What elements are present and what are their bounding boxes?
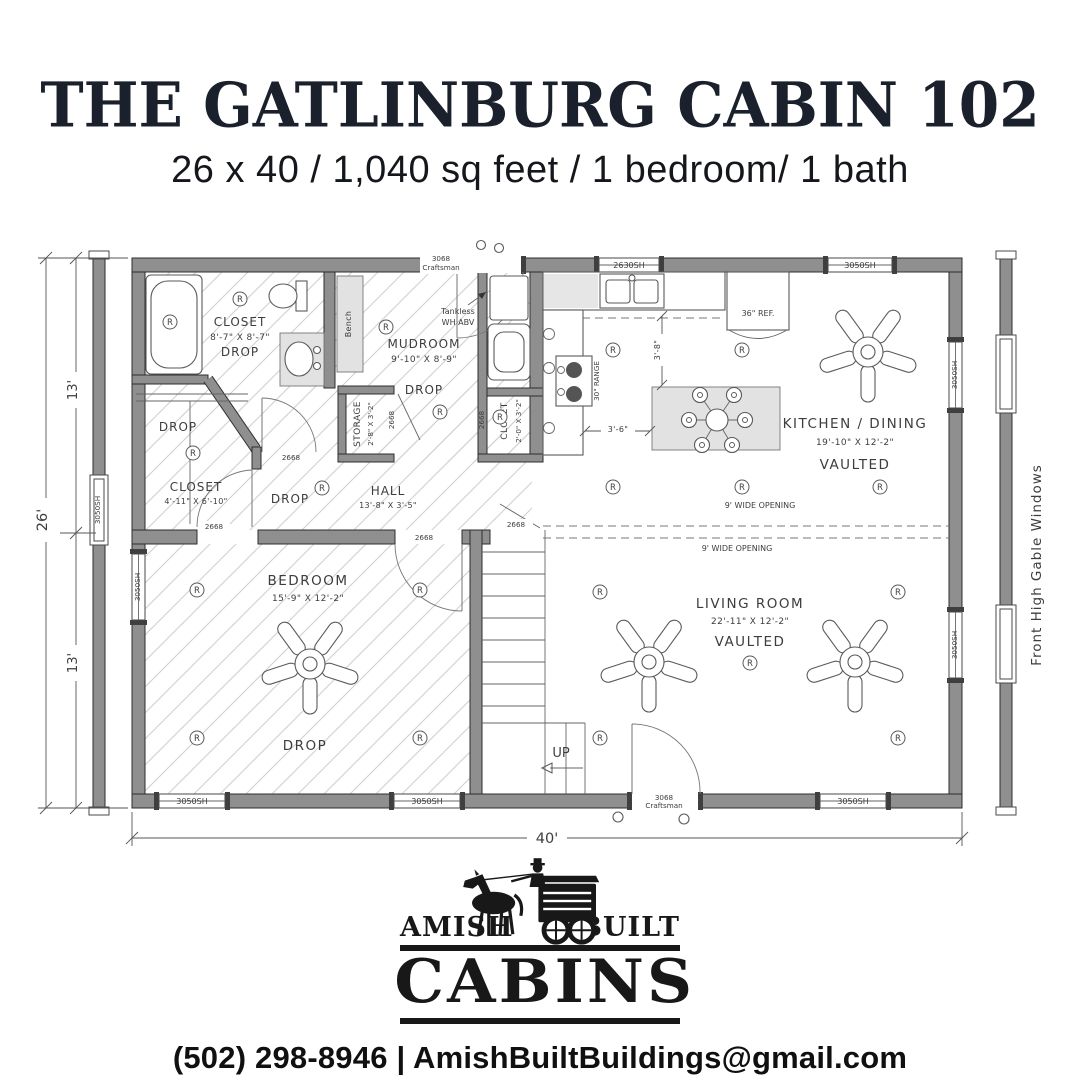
washer-inner [494,332,524,372]
wide-opening-label: 9' WIDE OPENING [725,501,796,510]
right-gable-strip [996,251,1016,815]
room-size: 2'-8" X 3'-2" [366,402,375,446]
wagon-body [538,884,596,922]
door-label: 2668 [477,410,486,429]
room-ceiling: DROP [405,383,443,397]
door-label: 2668 [415,533,434,542]
room-size: 13'-8" X 3'-5" [359,501,417,510]
room-name: KITCHEN / DINING [783,416,928,432]
driver-body [530,873,546,887]
dim-overall-width: 40' [536,831,558,847]
porch-light-icon [679,814,689,824]
front-door-living: 3068 Craftsman [627,724,703,810]
kitchen-dining: 30" RANGE 36" REF. 3'-6" 3'-8" [543,272,927,473]
door-label: 2668 [387,410,396,429]
room-size: 4'-11" X 6'-10" [164,497,227,506]
window-label: 3050SH [844,261,875,270]
driver-hat [534,858,542,864]
dim-label: 3'-8" [653,340,662,360]
door-label: Craftsman [422,263,459,272]
door-label: 2668 [282,453,301,462]
amish-built-cabins-logo: AMISH BUILT CABINS [400,856,680,1024]
room-size: 22'-11" X 12'-2" [711,617,789,627]
bench-label: Bench [344,311,353,337]
door-label: 2668 [205,522,224,531]
door-label: Craftsman [645,801,682,810]
room-ceiling: DROP [271,492,309,506]
window-3050sh-bottom-1: 3050SH [154,792,230,810]
room-name: STORAGE [353,401,363,447]
door-label: 3068 [432,254,451,263]
room-name: LIVING ROOM [696,596,804,612]
room-size: 8'-7" X 8'-7" [210,333,270,343]
room-ceiling: DROP [159,420,197,434]
window-label: 3050SH [950,361,959,389]
room-size: 15'-9" X 12'-2" [272,594,344,604]
room-size: 19'-10" X 12'-2" [816,438,894,448]
window-2630sh: 2630SH [594,256,664,274]
dim-top-half: 13' [66,380,81,400]
island [652,387,780,453]
range-label: 30" RANGE [592,361,601,401]
fridge-icon: 36" REF. [727,272,789,339]
gable-windows-note: Front High Gable Windows [1029,464,1045,666]
tankless-label: Tankless [440,307,475,316]
window-3050sh-bottom-2: 3050SH [389,792,465,810]
vanity-sink-icon [280,333,324,386]
window-label: 3050SH [837,797,868,806]
window-3050sh-top: 3050SH [823,256,897,274]
window-label: 3050SH [133,573,142,601]
range-icon: 30" RANGE [556,356,601,406]
room-name: CLOSET [214,315,267,329]
room-ceiling: VAULTED [820,457,891,473]
room-name: CLOSET [170,480,223,494]
dim-overall-height: 26' [35,509,51,531]
horse-ear [474,869,479,875]
up-label: UP [552,746,570,761]
horse-tail [514,895,521,916]
wide-opening-label: 9' WIDE OPENING [702,544,773,553]
room-name: HALL [371,484,406,498]
room-ceiling: DROP [221,345,259,359]
living-room: LIVING ROOM 22'-11" X 12'-2" VAULTED [599,596,904,712]
room-name: BEDROOM [268,573,349,589]
window-3050sh-right-1: 3050SH [947,337,964,413]
window-label: 3050SH [176,797,207,806]
window-label: 3050SH [411,797,442,806]
dim-label: 3'-6" [608,425,628,434]
fridge-label: 36" REF. [742,309,775,318]
window-label: 3050SH [93,496,102,524]
door-label: 2668 [507,520,526,529]
island-table [706,409,728,431]
small-closet-door: 2668 [477,410,486,429]
room-name: MUDROOM [388,337,461,351]
stairs: UP [482,530,585,794]
window-3050sh-bottom-3: 3050SH [815,792,891,810]
counter-corner [544,274,598,308]
dim-bottom-half: 13' [66,653,81,673]
logo-divider-bottom [400,1018,680,1024]
flyer-footer: AMISH BUILT CABINS (502) 298-8946 | Amis… [0,856,1080,1076]
window-label: 2630SH [613,261,644,270]
window-3050sh-right-2: 3050SH [947,607,964,683]
window-3050sh-left: 3050SH [130,549,147,625]
porch-light-icon [495,244,504,253]
wide-opening-beam: 9' WIDE OPENING 9' WIDE OPENING [543,501,949,553]
contact-line: (502) 298-8946 | AmishBuiltBuildings@gma… [0,1040,1080,1076]
window-label: 3050SH [950,631,959,659]
porch-light-icon [477,241,486,250]
dryer-icon [490,276,528,320]
porch-light-icon [613,812,623,822]
wagon-roof [537,876,599,882]
room-ceiling: VAULTED [715,634,786,650]
room-size: 9'-10" X 8'-9" [391,355,457,365]
tankless-label: WH ABV [442,318,475,327]
room-size: 2'-0" X 3'-2" [514,399,523,443]
kitchen-sink-icon [600,274,664,308]
room-ceiling: DROP [283,738,328,754]
logo-cabins: CABINS [394,951,685,1014]
